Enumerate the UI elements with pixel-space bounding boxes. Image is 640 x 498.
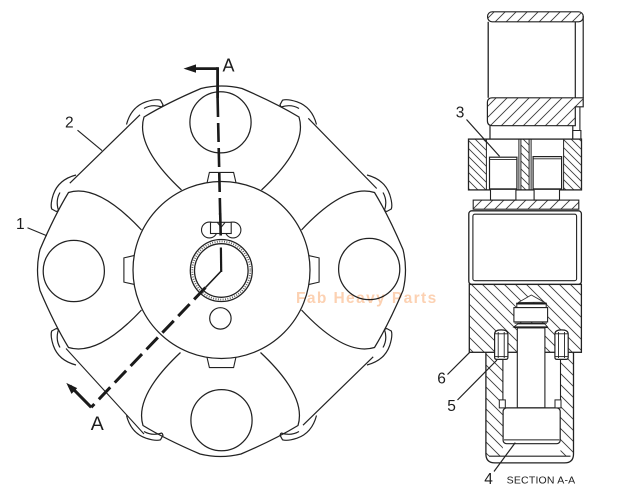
svg-text:Fab Heavy Parts: Fab Heavy Parts xyxy=(296,290,438,307)
svg-text:SECTION A-A: SECTION A-A xyxy=(507,474,576,486)
svg-text:4: 4 xyxy=(484,471,493,488)
svg-text:3: 3 xyxy=(456,105,465,122)
svg-text:1: 1 xyxy=(16,216,25,233)
svg-text:A: A xyxy=(91,413,104,435)
svg-text:6: 6 xyxy=(437,371,446,388)
svg-text:5: 5 xyxy=(447,398,456,415)
svg-text:A: A xyxy=(222,56,234,76)
svg-text:2: 2 xyxy=(65,115,74,132)
